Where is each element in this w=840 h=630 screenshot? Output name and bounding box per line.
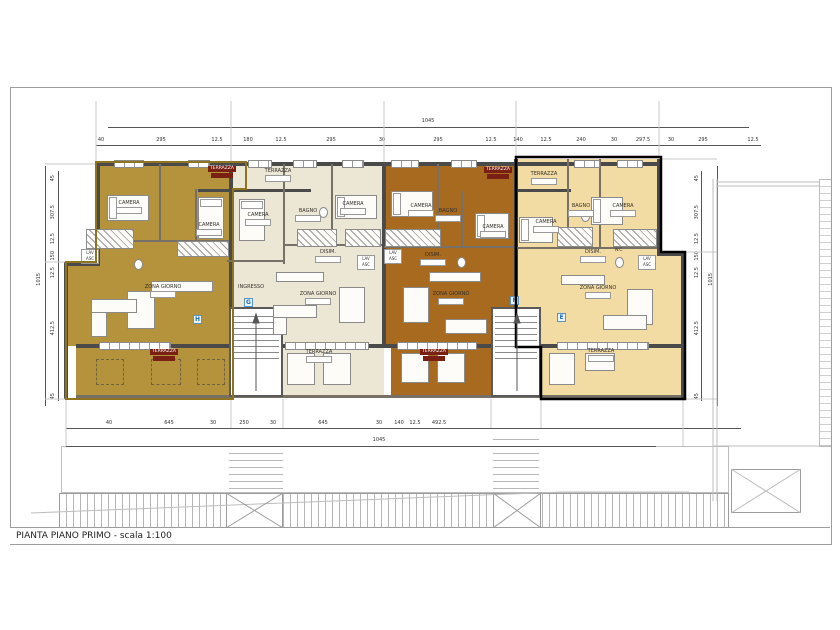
asc-label: ASC [82,256,98,262]
terrace-furniture [197,359,225,385]
unit-e-step-wall [657,159,661,256]
room-label-camera: CAMERA [612,204,633,209]
dimension-line [717,166,718,406]
dim-label: 12.5 [695,233,700,244]
drawing-sheet-frame: CAMERA CAMERA TERRAZZA ZONA GIORNO TERRA… [10,87,832,545]
dim-label: 295 [326,138,336,143]
kitchen-counter [561,275,605,285]
asc-label: ASC [358,262,374,268]
dim-label: 295 [156,138,166,143]
room-label-camera: CAMERA [535,220,556,225]
dim-label: 40 [98,138,104,143]
dim-label: 12.5 [211,138,222,143]
dim-label: 150 [695,251,700,261]
utility-label: LAVASC [81,249,99,264]
area-box [116,207,142,214]
area-box [340,208,366,215]
title-block: PIANTA PIANO PRIMO - scala 1:100 [10,527,830,544]
wardrobe [177,241,229,257]
area-box [531,178,557,185]
area-box [480,231,506,238]
room-label-terrazza: TERRAZZA [420,349,448,355]
terrace-furniture [96,359,124,385]
room-label-ingresso: INGRESSO [238,285,264,290]
room-label-zona-giorno: ZONA GIORNO [300,292,337,297]
dim-label: 12.5 [51,267,56,278]
area-box [150,291,176,298]
room-label-disimpegno: DISIM. [320,250,336,255]
neighbor-shaft-box [731,469,801,513]
dimension-line [45,166,46,406]
area-box [408,210,434,217]
room-label-disimpegno: DISIM. [425,253,441,258]
area-box [423,356,445,361]
area-box [568,210,594,217]
dim-label: 12.5 [540,138,551,143]
dim-label: 12.5 [747,138,758,143]
sofa [91,299,137,313]
lower-stair-flight [493,433,539,491]
toilet [615,257,624,268]
top-terrace-wall [198,189,311,192]
dim-label: 40 [106,421,112,426]
dim-label: 307.5 [51,205,56,219]
terrace-parapet [76,395,683,398]
area-box [153,356,175,361]
dim-label: 12.5 [51,233,56,244]
dim-label: 12.5 [485,138,496,143]
wood-deck [59,493,729,528]
dim-label: 645 [318,421,328,426]
area-box [585,292,611,299]
room-label-disimpegno: DISIM. [585,250,601,255]
room-label-bagno: BAGNO [299,209,317,214]
dim-label: 30 [376,421,382,426]
dining-table [403,287,429,323]
partition [227,260,285,262]
area-box [588,355,614,362]
kitchen-counter [276,272,324,282]
deck-shaft-box [226,493,283,528]
unit-badge-f: F [510,296,519,305]
dim-label: 45 [51,175,56,181]
area-box [295,215,321,222]
dim-label: 295 [698,138,708,143]
wardrobe [557,227,593,247]
deck-shaft-box [493,493,541,528]
area-box [245,219,271,226]
wardrobe [385,229,441,247]
dim-label: 645 [164,421,174,426]
wardrobe [297,229,337,247]
area-box [533,226,559,233]
room-label-camera: CAMERA [118,201,139,206]
room-label-camera: CAMERA [198,223,219,228]
room-label-bagno: BAGNO [439,209,457,214]
unit-badge-h: H [193,315,202,324]
room-label-terrazza: TERRAZZA [531,172,558,177]
bed-pillow [393,193,401,215]
dim-label: 12.5 [695,267,700,278]
neighbor-strip [819,179,832,447]
area-box [580,256,606,263]
dim-label: 297.5 [636,138,650,143]
room-label-zona-giorno: ZONA GIORNO [145,285,182,290]
room-label-camera: CAMERA [342,202,363,207]
sofa [445,319,487,334]
room-label-camera: CAMERA [410,204,431,209]
lower-stair-flight [229,447,283,493]
dimension-line [701,171,702,401]
dim-label: 307.5 [695,205,700,219]
dim-label-overall-height: 1015 [709,273,714,286]
area-box [211,173,233,178]
dim-label: 412.5 [51,321,56,335]
dim-label: 412.5 [695,321,700,335]
area-box [306,356,332,363]
window [391,160,419,168]
dim-label: 492.5 [432,421,446,426]
unit-e-area [516,254,683,346]
stair-treads [495,311,537,359]
dining-table [339,287,365,323]
dim-label: 30 [270,421,276,426]
unit-badge-g: G [244,298,253,307]
room-label-zona-giorno: ZONA GIORNO [580,286,617,291]
dimension-line [66,446,656,447]
room-label-zona-giorno: ZONA GIORNO [433,292,470,297]
room-label-wc: W.C. [615,247,624,252]
plan-canvas: CAMERA CAMERA TERRAZZA ZONA GIORNO TERRA… [10,87,832,545]
area-box [315,256,341,263]
room-label-terrazza: TERRAZZA [306,350,333,355]
drawing-page: CAMERA CAMERA TERRAZZA ZONA GIORNO TERRA… [0,0,840,630]
dim-label: 140 [513,138,523,143]
dim-label: 140 [394,421,404,426]
area-box [435,215,461,222]
room-label-terrazza: TERRAZZA [150,349,178,355]
sofa [273,305,317,318]
dim-label: 30 [668,138,674,143]
bed-pillow [593,199,601,223]
area-box [265,175,291,182]
window [617,160,643,168]
window [293,160,317,168]
drawing-title: PIANTA PIANO PRIMO - scala 1:100 [10,528,830,541]
partition [461,191,463,246]
dimension-line [96,145,761,146]
window [114,160,144,168]
window [451,160,477,168]
dim-label: 30 [379,138,385,143]
unit-e-right-wall [681,254,685,399]
area-box [610,210,636,217]
dim-label-overall-width: 1045 [422,119,435,124]
kitchen-counter [429,272,481,282]
window [574,160,600,168]
terrace-furniture [151,359,181,385]
utility-label: LAVASC [357,255,375,270]
dim-label: 12.5 [275,138,286,143]
dim-label: 12.5 [409,421,420,426]
dimension-line [108,127,749,128]
dimension-line [66,428,741,429]
area-box [420,259,446,266]
window [248,160,272,168]
dim-label-overall-width: 1045 [373,438,386,443]
room-label-camera: CAMERA [482,225,503,230]
dim-label: 240 [576,138,586,143]
dim-label: 45 [51,393,56,399]
area-box [196,229,222,236]
dim-label: 295 [433,138,443,143]
window [188,160,210,168]
bed-pillow [521,219,529,241]
dim-label: 250 [239,421,249,426]
room-label-terrazza: TERRAZZA [588,349,615,354]
utility-label: LAVASC [384,249,402,264]
bed-pillow [241,201,263,209]
dim-label: 45 [695,393,700,399]
asc-label: ASC [385,256,401,262]
wardrobe [613,229,657,247]
ground-terrace-outline [61,446,729,493]
dimension-line [58,171,59,401]
room-label-terrazza: TERRAZZA [265,169,292,174]
utility-label: LAVASC [638,255,656,270]
partition [159,164,161,242]
toilet [134,259,143,270]
top-terrace-wall [516,189,571,192]
room-label-bagno: BAGNO [572,204,590,209]
sofa [603,315,647,330]
area-box [305,298,331,305]
room-label-camera: CAMERA [247,213,268,218]
dim-label-overall-height: 1015 [37,273,42,286]
dim-label: 30 [210,421,216,426]
wardrobe [345,229,381,247]
dim-label: 180 [243,138,253,143]
unit-h-left-wall [64,262,68,399]
area-box [438,298,464,305]
unit-badge-e: E [557,313,566,322]
terrace-furniture [549,353,575,385]
dim-label: 150 [51,251,56,261]
area-box [487,174,509,179]
dim-label: 45 [695,175,700,181]
wardrobe [86,229,134,249]
toilet [457,257,466,268]
window [342,160,364,168]
dim-label: 30 [611,138,617,143]
bed-pillow [200,199,222,207]
room-label-terrazza: TERRAZZA [208,166,236,172]
asc-label: ASC [639,262,655,268]
room-label-terrazza: TERRAZZA [484,167,512,173]
